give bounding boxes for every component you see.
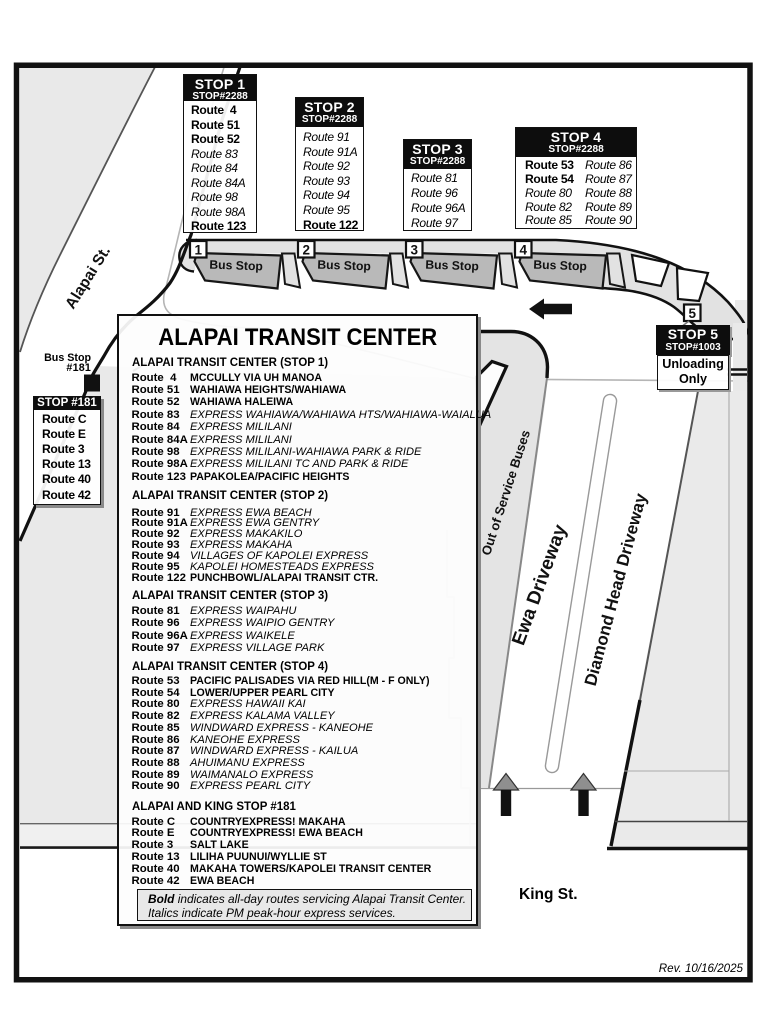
svg-text:Bus Stop: Bus Stop — [209, 258, 263, 274]
svg-text:Bus Stop: Bus Stop — [317, 258, 371, 274]
svg-text:3: 3 — [410, 243, 418, 258]
svg-text:5: 5 — [688, 306, 696, 321]
svg-text:2: 2 — [302, 243, 310, 258]
svg-text:1: 1 — [194, 243, 202, 258]
svg-text:Alapai St.: Alapai St. — [62, 243, 114, 312]
svg-text:4: 4 — [519, 243, 527, 258]
svg-text:Bus Stop: Bus Stop — [533, 258, 587, 274]
svg-text:Bus Stop: Bus Stop — [425, 258, 479, 274]
